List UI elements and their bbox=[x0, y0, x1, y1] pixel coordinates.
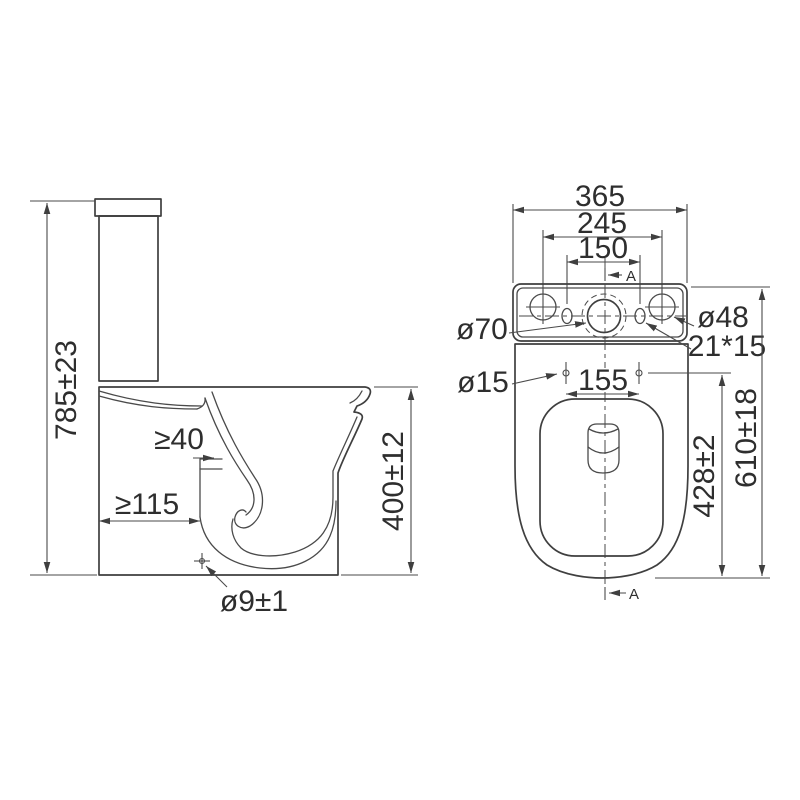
toilet-dimension-drawing: 785±23 400±12 ≥40 ≥115 ø9±1 365 bbox=[0, 0, 800, 800]
dim-tank-center-hole-diameter: ø70 bbox=[456, 313, 508, 346]
tank-side-hole-left bbox=[526, 290, 560, 324]
seat-fixing-hole-left bbox=[563, 362, 569, 384]
dim-bowl-height: 400±12 bbox=[377, 431, 410, 531]
flush-cup-mid-arc bbox=[588, 447, 619, 453]
flush-cup-top-arc bbox=[589, 429, 618, 433]
dim-seat-fixing-spacing: 155 bbox=[578, 364, 628, 397]
dim-inlet-spacing: 150 bbox=[578, 232, 628, 265]
dim-fixing-hole-diameter: ø9±1 bbox=[220, 585, 288, 618]
dim-min-outlet-distance: ≥115 bbox=[115, 488, 179, 521]
section-label-top: A bbox=[626, 268, 636, 285]
rim-top-line bbox=[99, 391, 202, 406]
top-view: 365 245 150 A bbox=[456, 180, 770, 603]
tank-side-hole-right bbox=[645, 290, 679, 324]
seat-opening-outline bbox=[540, 399, 663, 556]
seat-hole-leader bbox=[512, 374, 557, 384]
side-hole-leader bbox=[674, 317, 694, 326]
side-view: 785±23 400±12 ≥40 ≥115 ø9±1 bbox=[30, 199, 418, 618]
trapway-outer-sweep bbox=[200, 501, 336, 569]
bowl-funnel-line bbox=[205, 398, 254, 515]
technical-drawing-page: 785±23 400±12 ≥40 ≥115 ø9±1 365 bbox=[0, 0, 800, 800]
fixing-hole-marker bbox=[194, 553, 210, 569]
section-label-bottom: A bbox=[629, 586, 639, 603]
rim-lip bbox=[197, 398, 205, 409]
seat-fixing-hole-right bbox=[636, 362, 642, 384]
cistern-body bbox=[99, 216, 158, 381]
dim-bowl-fixing-length: 428±2 bbox=[688, 434, 721, 517]
slot-leader bbox=[646, 323, 691, 349]
fixing-hole-leader bbox=[206, 566, 227, 587]
dim-min-gap: ≥40 bbox=[154, 423, 204, 456]
dim-tank-slot-size: 21*15 bbox=[688, 330, 766, 363]
bowl-outer-profile bbox=[99, 387, 370, 575]
dim-overall-depth: 610±18 bbox=[730, 388, 763, 488]
center-hole-leader bbox=[509, 323, 586, 333]
dim-overall-height: 785±23 bbox=[50, 340, 83, 440]
dim-seat-fixing-hole-diameter: ø15 bbox=[457, 366, 509, 399]
inlet-step bbox=[200, 459, 222, 469]
back-wall-inner-line bbox=[350, 391, 362, 403]
weir-hook-line bbox=[212, 392, 262, 528]
cistern-lid bbox=[95, 199, 161, 216]
